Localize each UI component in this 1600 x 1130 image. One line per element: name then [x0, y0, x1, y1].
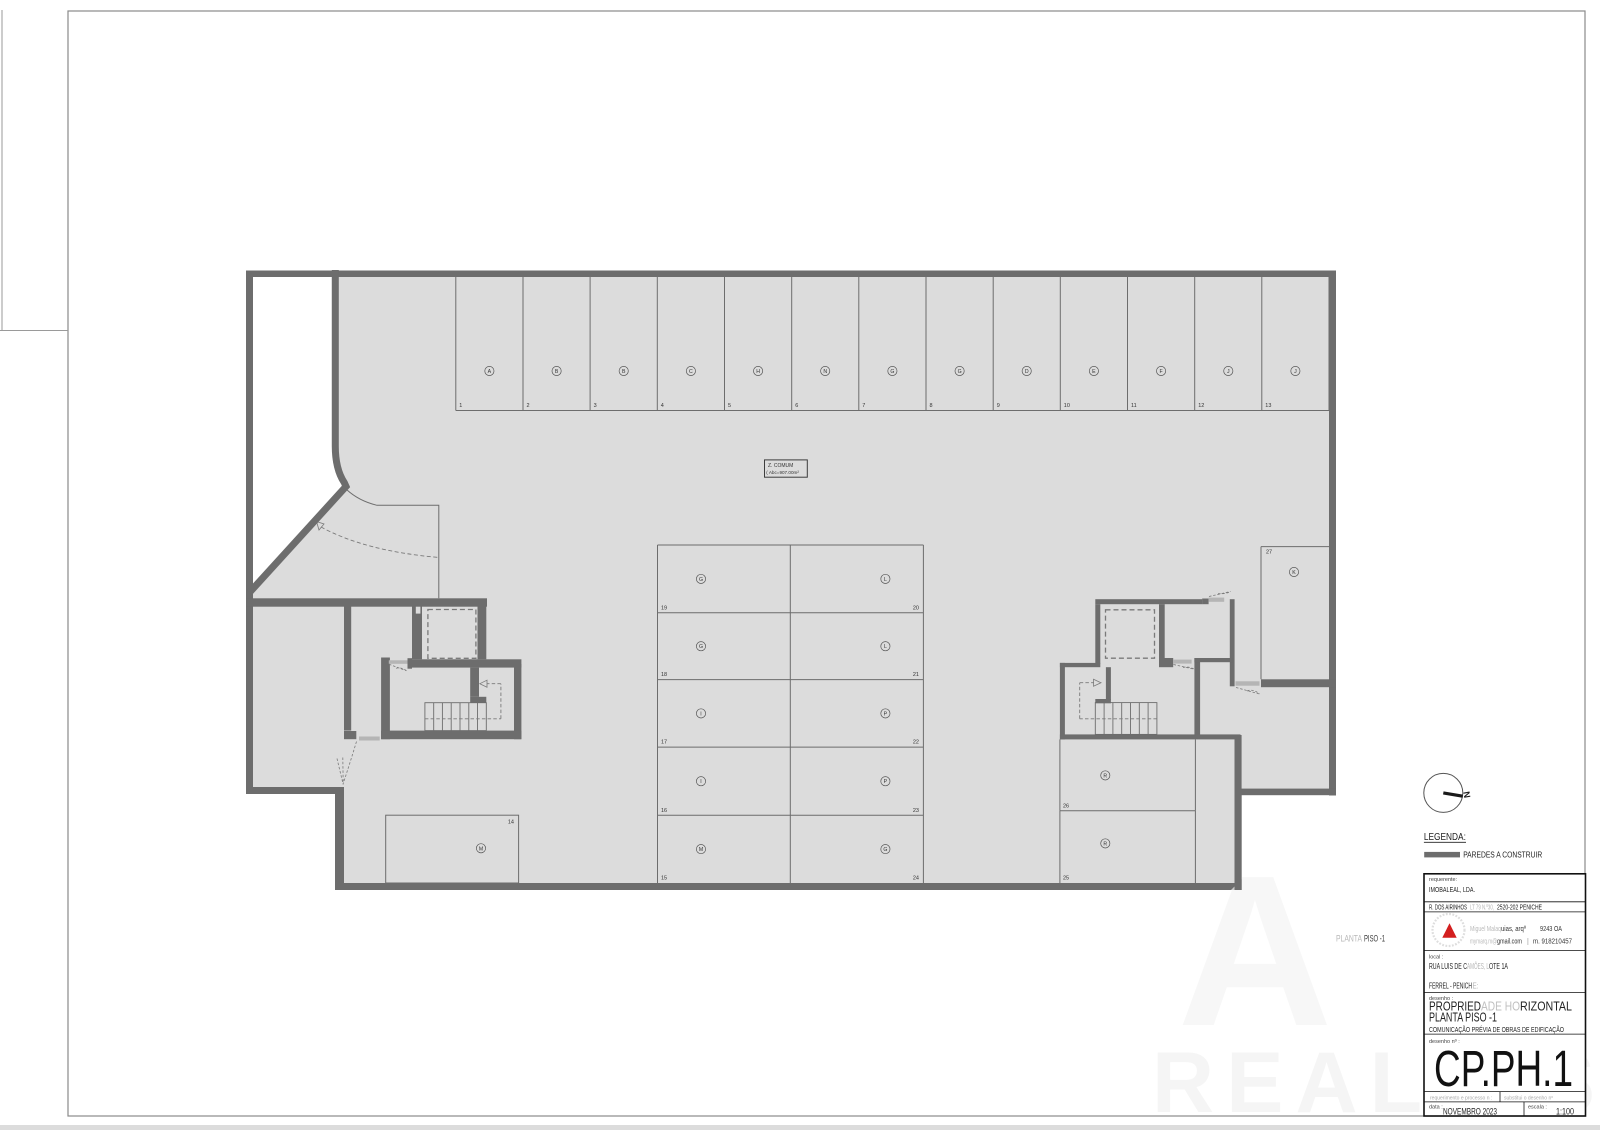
svg-text:PLANTA PISO -1: PLANTA PISO -1	[1429, 1011, 1497, 1025]
svg-text:requerente:: requerente:	[1429, 877, 1458, 883]
svg-text:1: 1	[459, 403, 462, 409]
svg-text:24: 24	[913, 876, 919, 882]
svg-text:G: G	[699, 577, 703, 583]
svg-text:m. 918210457: m. 918210457	[1533, 939, 1572, 946]
svg-text:requerimento e processo n :: requerimento e processo n :	[1430, 1096, 1492, 1102]
svg-text:27: 27	[1266, 550, 1272, 556]
svg-text:H: H	[756, 369, 760, 375]
svg-text:L: L	[884, 577, 887, 583]
svg-text:COMUNICAÇÃO PRÉVIA DE OBRAS DE: COMUNICAÇÃO PRÉVIA DE OBRAS DE EDIFICAÇÃ…	[1429, 1025, 1564, 1034]
svg-text:IMOBALEAL, LDA.: IMOBALEAL, LDA.	[1429, 885, 1475, 894]
svg-text:G: G	[883, 847, 887, 853]
svg-text:17: 17	[661, 740, 667, 746]
svg-text:PLANTA: PLANTA	[1336, 934, 1362, 945]
svg-text:OTE 1A: OTE 1A	[1489, 961, 1508, 971]
svg-text:F: F	[1160, 369, 1163, 375]
svg-text:PISO -1: PISO -1	[1364, 934, 1385, 945]
svg-text:12: 12	[1198, 403, 1204, 409]
svg-text:2520-202 PENICHE: 2520-202 PENICHE	[1497, 903, 1542, 912]
svg-text:15: 15	[661, 876, 667, 882]
svg-text:CP.PH.1: CP.PH.1	[1434, 1040, 1573, 1097]
svg-text:19: 19	[661, 605, 667, 611]
svg-text:escala :: escala :	[1528, 1105, 1547, 1111]
svg-text:uias, arqº: uias, arqº	[1501, 926, 1526, 933]
svg-text:local :: local :	[1429, 955, 1444, 961]
svg-text:K: K	[1292, 570, 1296, 576]
svg-text:26: 26	[1063, 804, 1069, 810]
svg-text:L: L	[884, 644, 887, 650]
svg-text:LEGENDA:: LEGENDA:	[1424, 831, 1466, 843]
svg-text:18: 18	[661, 672, 667, 678]
svg-text:G: G	[699, 644, 703, 650]
svg-text:1:100: 1:100	[1556, 1107, 1574, 1117]
svg-text:P: P	[884, 779, 888, 785]
svg-text:23: 23	[913, 808, 919, 814]
svg-text:13: 13	[1265, 403, 1271, 409]
svg-text:AMÕES, L: AMÕES, L	[1467, 961, 1489, 971]
svg-text:( Abc=907.00m²: ( Abc=907.00m²	[766, 470, 799, 475]
svg-text:5: 5	[728, 403, 731, 409]
svg-text:Z. COMUM: Z. COMUM	[768, 463, 793, 469]
svg-text:A: A	[488, 369, 492, 375]
svg-text:10: 10	[1064, 403, 1070, 409]
svg-text:B: B	[555, 369, 559, 375]
svg-text:|: |	[1527, 939, 1529, 946]
svg-text:R. DOS AIRINHOS: R. DOS AIRINHOS	[1429, 903, 1467, 912]
svg-text:FERREL - PENICH: FERREL - PENICH	[1429, 981, 1472, 991]
svg-text:N: N	[823, 369, 827, 375]
svg-text:gmail.com: gmail.com	[1497, 939, 1522, 946]
svg-text:9243 OA: 9243 OA	[1540, 926, 1562, 933]
svg-text:14: 14	[508, 820, 514, 826]
svg-text:6: 6	[795, 403, 798, 409]
svg-text:7: 7	[862, 403, 865, 409]
svg-text:2: 2	[527, 403, 530, 409]
svg-text:Miguel Malaq: Miguel Malaq	[1470, 926, 1501, 933]
svg-text:mymarq.m@: mymarq.m@	[1470, 939, 1497, 946]
svg-text:G: G	[890, 369, 894, 375]
svg-text:E: E	[1092, 369, 1096, 375]
svg-text:20: 20	[913, 605, 919, 611]
svg-text:J: J	[1227, 369, 1230, 375]
svg-text:16: 16	[661, 808, 667, 814]
svg-text:D: D	[1025, 369, 1029, 375]
svg-text:4: 4	[661, 403, 664, 409]
svg-text:21: 21	[913, 672, 919, 678]
svg-text:R: R	[1103, 841, 1107, 847]
svg-text:I: I	[700, 711, 701, 717]
svg-text:NOVEMBRO 2023: NOVEMBRO 2023	[1443, 1107, 1497, 1117]
svg-text:data :: data :	[1429, 1105, 1443, 1111]
svg-text:E:: E:	[1473, 981, 1479, 991]
svg-text:G: G	[958, 369, 962, 375]
svg-text:J: J	[1294, 369, 1297, 375]
svg-text:B: B	[622, 369, 626, 375]
svg-text:substitui o desenho nº: substitui o desenho nº	[1504, 1096, 1553, 1102]
svg-text:11: 11	[1131, 403, 1137, 409]
svg-text:22: 22	[913, 740, 919, 746]
svg-text:I: I	[700, 779, 701, 785]
svg-text:PAREDES A CONSTRUIR: PAREDES A CONSTRUIR	[1463, 851, 1542, 860]
svg-text:M: M	[479, 846, 483, 852]
svg-text:RUA LUIS DE C: RUA LUIS DE C	[1429, 961, 1467, 971]
svg-text:8: 8	[930, 403, 933, 409]
svg-text:25: 25	[1063, 876, 1069, 882]
svg-text:RIZONTAL: RIZONTAL	[1520, 1000, 1572, 1014]
svg-text:9: 9	[997, 403, 1000, 409]
svg-text:R: R	[1103, 773, 1107, 779]
svg-text:P: P	[884, 711, 888, 717]
svg-text:M: M	[699, 847, 703, 853]
svg-text:C: C	[689, 369, 693, 375]
svg-text:3: 3	[594, 403, 597, 409]
svg-text:LT 79 N.º30,: LT 79 N.º30,	[1470, 903, 1494, 912]
